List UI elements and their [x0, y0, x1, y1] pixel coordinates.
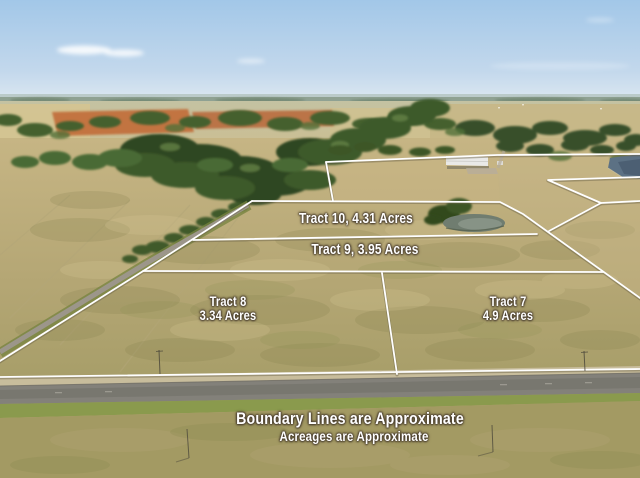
- tract9-tract7-line: [143, 271, 603, 272]
- tract-10-label: Tract 10, 4.31 Acres: [299, 212, 413, 227]
- aerial-photo-scene: [0, 0, 640, 478]
- disclaimer-boundary-lines: Boundary Lines are Approximate: [236, 411, 464, 428]
- tract-7-acres: 4.9 Acres: [483, 309, 533, 323]
- tract-9-label: Tract 9, 3.95 Acres: [311, 243, 418, 258]
- tract-8-acres: 3.34 Acres: [200, 309, 257, 323]
- sky: [0, 0, 640, 102]
- tract-8-label: Tract 8 3.34 Acres: [200, 295, 257, 324]
- disclaimer-acreages: Acreages are Approximate: [280, 429, 429, 444]
- barn-pad: [466, 168, 498, 174]
- tract-7-label: Tract 7 4.9 Acres: [483, 295, 533, 324]
- aerial-tract-photo: Tract 10, 4.31 Acres Tract 9, 3.95 Acres…: [0, 0, 640, 478]
